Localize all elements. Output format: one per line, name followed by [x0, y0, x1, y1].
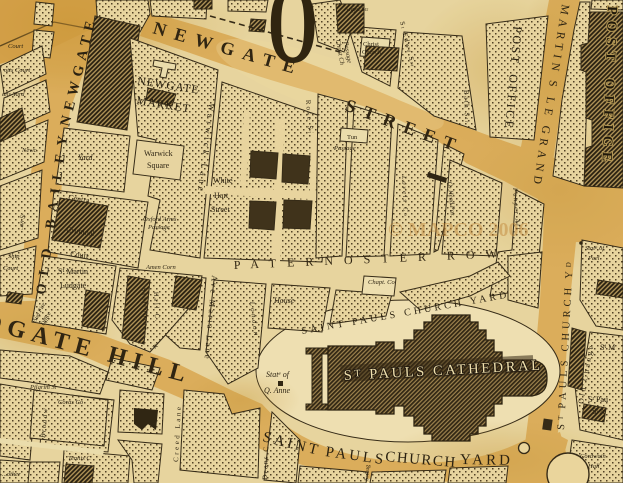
svg-text:© MAPCO 2006: © MAPCO 2006	[388, 219, 528, 241]
